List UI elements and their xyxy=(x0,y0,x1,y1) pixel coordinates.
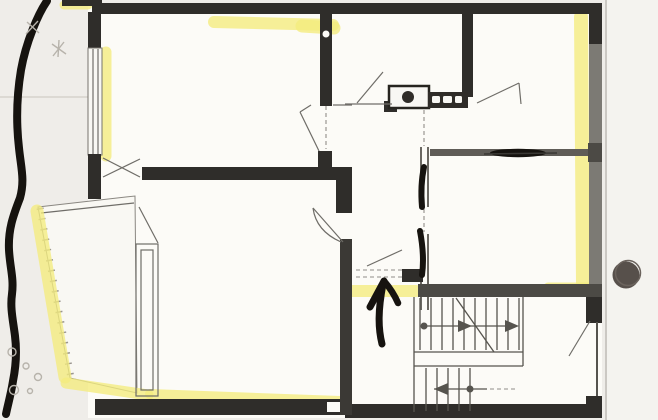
page-edge-line xyxy=(605,0,607,420)
left-wall-lower xyxy=(88,154,101,199)
stair-up-arrow-start-dot xyxy=(421,323,428,330)
hall-wall-hinge-dot xyxy=(323,31,330,38)
pencil-star-2c xyxy=(58,40,59,57)
mid-horizontal-wall xyxy=(142,167,345,180)
right-wall-top xyxy=(589,3,602,44)
scanned-floor-plan-page xyxy=(0,0,658,420)
hole-punch-mark xyxy=(613,262,640,289)
mid-wall-corner xyxy=(336,167,352,213)
bottom-wall-notch xyxy=(327,402,340,412)
page-crease-line xyxy=(0,96,90,98)
page-right-margin xyxy=(607,0,658,420)
lower-divider-wall xyxy=(340,239,352,415)
pencil-doodle-circle xyxy=(23,363,29,369)
pencil-doodle-circle xyxy=(35,374,42,381)
room-right-bottom-wall xyxy=(418,284,602,297)
kitchen-stove-burner xyxy=(402,91,414,103)
kitchen-right-wall xyxy=(462,13,473,97)
floor-plan-drawing xyxy=(0,0,658,420)
marker-door-post-2 xyxy=(420,231,423,275)
marker-door-post-1 xyxy=(421,167,424,207)
kitchen-sink-basin-3 xyxy=(455,96,462,103)
top-exterior-wall xyxy=(92,3,602,14)
left-window xyxy=(88,48,102,155)
bottom-wall-left xyxy=(95,399,347,415)
stair-down-arrow-dot xyxy=(467,386,474,393)
room-right-top-wall-end xyxy=(588,143,602,162)
kitchen-sink-basin-1 xyxy=(432,96,440,103)
hall-top-wall xyxy=(320,13,332,106)
marker-lintel-tail xyxy=(484,153,557,154)
right-wall-mid xyxy=(589,44,602,293)
left-wall-upper xyxy=(88,12,101,49)
kitchen-sink-basin-2 xyxy=(443,96,452,103)
pencil-doodle-circle xyxy=(28,389,33,394)
entrance-door-closed-line xyxy=(596,322,598,397)
bottom-wall-right xyxy=(345,404,602,418)
